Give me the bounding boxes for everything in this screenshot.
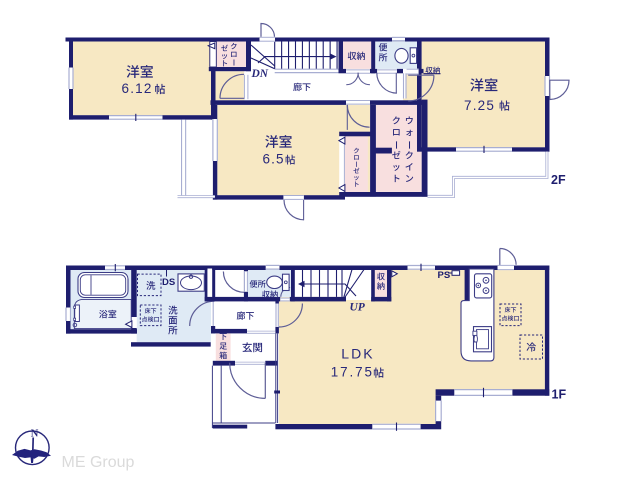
svg-text:17.75: 17.75 xyxy=(331,365,374,380)
svg-text:DN: DN xyxy=(251,68,269,80)
svg-text:6.12: 6.12 xyxy=(122,81,153,96)
svg-text:6.5: 6.5 xyxy=(263,152,285,167)
svg-text:DS: DS xyxy=(162,277,175,288)
svg-text:1F: 1F xyxy=(552,388,567,402)
svg-text:N: N xyxy=(31,429,39,440)
svg-text:7.25: 7.25 xyxy=(464,98,495,113)
svg-text:LDK: LDK xyxy=(341,346,374,362)
svg-text:ME Group: ME Group xyxy=(62,454,135,471)
svg-text:2F: 2F xyxy=(551,173,566,187)
svg-text:PS: PS xyxy=(438,270,451,281)
svg-text:UP: UP xyxy=(350,302,366,314)
